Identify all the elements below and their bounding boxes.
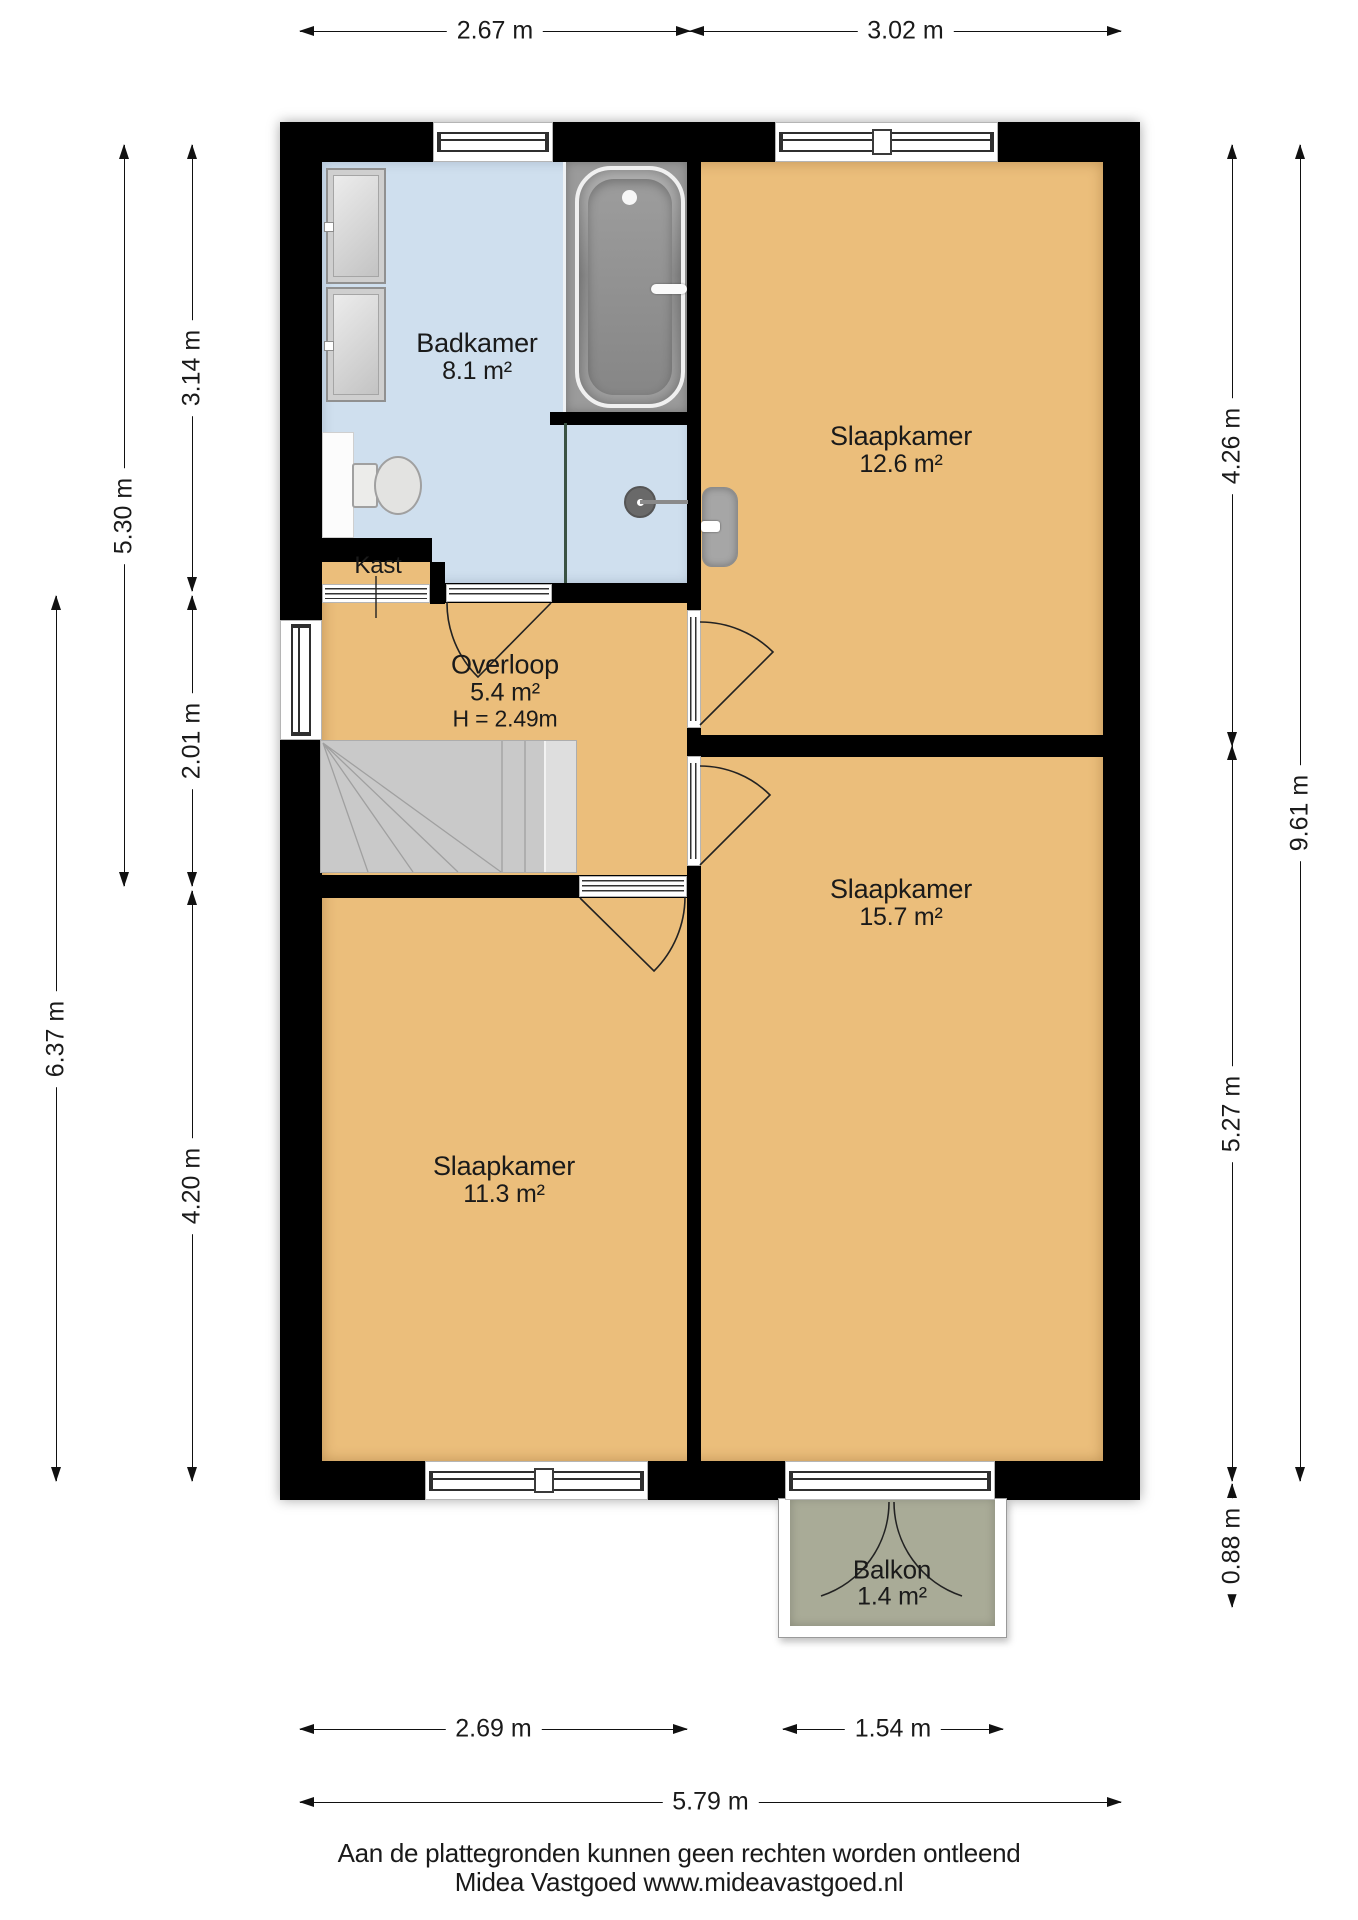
- room-ceiling-height: H = 2.49m: [451, 707, 559, 732]
- washbasin-faucet: [701, 521, 720, 532]
- door-leaf-lines: [582, 880, 684, 893]
- room-label-kast: Kast: [354, 553, 401, 579]
- dim-label: 4.20 m: [178, 1138, 207, 1234]
- toilet-bowl: [374, 456, 422, 515]
- wall-tub-south: [550, 412, 690, 425]
- staircase: [320, 740, 577, 873]
- arrow-down-icon: [1295, 1467, 1305, 1482]
- window-divider: [872, 129, 892, 155]
- bathroom-cabinet-1: [326, 168, 386, 284]
- arrow-down-icon: [119, 872, 129, 887]
- dim-bottom-2: 1.54 m: [783, 1729, 1003, 1730]
- door-leaf-lines: [325, 588, 427, 599]
- room-label-slaapkamer3: Slaapkamer 15.7 m²: [830, 875, 972, 931]
- window-bedroom1-top: [775, 122, 998, 162]
- arrow-left-icon: [782, 1724, 797, 1734]
- footer-disclaimer: Aan de plattegronden kunnen geen rechten…: [0, 1839, 1358, 1868]
- arrow-right-icon: [1107, 1797, 1122, 1807]
- arrow-left-icon: [689, 26, 704, 36]
- wall-bottom: [280, 1461, 1140, 1500]
- arrow-up-icon: [1227, 144, 1237, 159]
- shower-glass-screen: [564, 423, 567, 583]
- arrow-right-icon: [673, 1724, 688, 1734]
- dim-left-inner-1: 3.14 m: [192, 145, 193, 591]
- door-badkamer: [446, 584, 552, 602]
- dim-left-inner-3: 4.20 m: [192, 891, 193, 1481]
- dim-label: 9.61 m: [1286, 765, 1315, 861]
- arrow-up-icon: [119, 144, 129, 159]
- cabinet-knob: [324, 222, 334, 232]
- room-name: Slaapkamer: [830, 422, 972, 451]
- wall-bedrooms-divider: [701, 735, 1103, 757]
- room-area: 8.1 m²: [416, 358, 537, 385]
- arrow-down-icon: [51, 1467, 61, 1482]
- wall-kast-post: [430, 562, 445, 604]
- arrow-up-icon: [187, 890, 197, 905]
- bathtub: [575, 166, 685, 408]
- room-name: Overloop: [451, 651, 559, 680]
- cabinet-panel: [333, 175, 379, 277]
- bathtub-drain: [622, 190, 637, 205]
- room-name: Slaapkamer: [830, 875, 972, 904]
- dim-label: 5.79 m: [662, 1788, 758, 1817]
- room-label-slaapkamer1: Slaapkamer 12.6 m²: [830, 422, 972, 478]
- arrow-down-icon: [187, 872, 197, 887]
- arrow-left-icon: [299, 1724, 314, 1734]
- dim-top-1: 2.67 m: [300, 31, 690, 32]
- dim-label: 2.67 m: [447, 17, 543, 46]
- door-leaf-lines: [690, 763, 698, 859]
- room-name: Balkon: [853, 1555, 931, 1583]
- arrow-left-icon: [299, 1797, 314, 1807]
- dim-label: 4.26 m: [1218, 397, 1247, 493]
- balcony-french-doors: [785, 1461, 995, 1500]
- window-overloop-left: [280, 620, 322, 740]
- door-kast: [322, 584, 430, 603]
- window-divider: [534, 1468, 554, 1493]
- wall-top: [280, 122, 1140, 162]
- dim-right-inner-2: 5.27 m: [1232, 746, 1233, 1481]
- dim-right-inner-1: 4.26 m: [1232, 145, 1233, 746]
- room-area: 5.4 m²: [451, 680, 559, 707]
- arrow-down-icon: [187, 1467, 197, 1482]
- floor-plan: Badkamer 8.1 m² Slaapkamer 12.6 m² Kast …: [0, 0, 1358, 1920]
- room-area: 12.6 m²: [830, 451, 972, 478]
- arrow-right-icon: [1107, 26, 1122, 36]
- footer-agency: Midea Vastgoed www.mideavastgoed.nl: [0, 1868, 1358, 1897]
- arrow-up-icon: [1295, 144, 1305, 159]
- arrow-up-icon: [1227, 1483, 1237, 1498]
- cabinet-knob: [324, 341, 334, 351]
- room-label-balkon: Balkon 1.4 m²: [853, 1555, 931, 1610]
- wall-right: [1103, 122, 1140, 1500]
- door-leaf-lines: [690, 617, 698, 721]
- room-label-overloop: Overloop 5.4 m² H = 2.49m: [451, 651, 559, 732]
- shower-head-dot: [637, 499, 644, 506]
- bathroom-counter: [322, 432, 354, 538]
- bathroom-cabinet-2: [326, 287, 386, 402]
- room-area: 1.4 m²: [853, 1584, 931, 1611]
- window-glazing: [291, 624, 311, 736]
- room-label-badkamer: Badkamer 8.1 m²: [416, 329, 537, 385]
- door-slaapkamer2: [579, 876, 687, 897]
- footer: Aan de plattegronden kunnen geen rechten…: [0, 1839, 1358, 1897]
- staircase-landing: [544, 741, 576, 872]
- cabinet-panel: [333, 294, 379, 395]
- door-glazing: [789, 1471, 991, 1491]
- arrow-up-icon: [187, 144, 197, 159]
- wall-left: [280, 122, 322, 1500]
- dim-label: 5.27 m: [1218, 1065, 1247, 1161]
- window-glazing: [437, 132, 549, 152]
- arrow-up-icon: [51, 595, 61, 610]
- window-bathroom-top: [433, 122, 553, 162]
- dim-left-outer-2: 6.37 m: [56, 596, 57, 1481]
- dim-label: 3.14 m: [178, 320, 207, 416]
- bathtub-faucet: [651, 284, 687, 294]
- arrow-down-icon: [1227, 1467, 1237, 1482]
- arrow-up-icon: [187, 595, 197, 610]
- dim-bottom-total: 5.79 m: [300, 1802, 1121, 1803]
- arrow-right-icon: [989, 1724, 1004, 1734]
- door-slaapkamer1: [687, 610, 701, 728]
- window-bedroom2-bottom: [425, 1461, 648, 1500]
- dim-right-outer: 9.61 m: [1300, 145, 1301, 1481]
- dim-bottom-1: 2.69 m: [300, 1729, 687, 1730]
- door-leaf-lines: [449, 588, 549, 598]
- dim-label: 3.02 m: [857, 17, 953, 46]
- room-name: Badkamer: [416, 329, 537, 358]
- arrow-down-icon: [1227, 1593, 1237, 1608]
- arrow-up-icon: [1227, 745, 1237, 760]
- dim-label: 0.88 m: [1218, 1497, 1247, 1593]
- dim-label: 5.30 m: [110, 467, 139, 563]
- arrow-down-icon: [187, 577, 197, 592]
- dim-label: 1.54 m: [845, 1715, 941, 1744]
- arrow-left-icon: [299, 26, 314, 36]
- dim-right-inner-3: 0.88 m: [1232, 1484, 1233, 1607]
- dim-top-2: 3.02 m: [690, 31, 1121, 32]
- room-label-slaapkamer2: Slaapkamer 11.3 m²: [433, 1152, 575, 1208]
- dim-left-outer-1: 5.30 m: [124, 145, 125, 886]
- dim-label: 6.37 m: [42, 990, 71, 1086]
- room-name: Slaapkamer: [433, 1152, 575, 1181]
- room-area: 11.3 m²: [433, 1181, 575, 1208]
- dim-label: 2.01 m: [178, 693, 207, 789]
- dim-label: 2.69 m: [445, 1715, 541, 1744]
- door-slaapkamer3: [687, 756, 701, 866]
- room-area: 15.7 m²: [830, 904, 972, 931]
- dim-left-inner-2: 2.01 m: [192, 596, 193, 886]
